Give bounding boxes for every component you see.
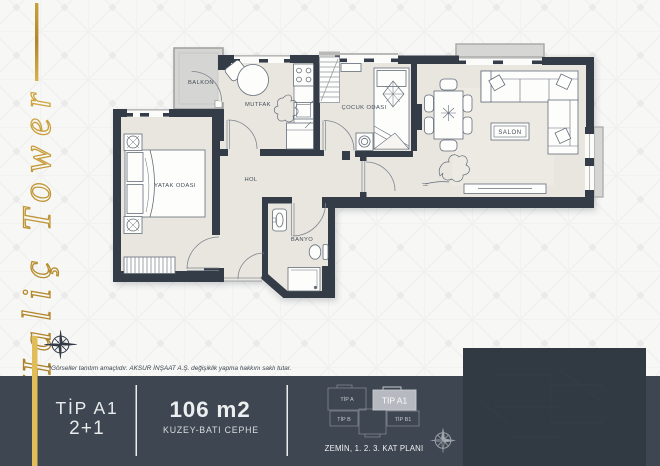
svg-text:TİP B1: TİP B1 — [395, 416, 412, 423]
svg-text:TİP B: TİP B — [337, 416, 351, 423]
svg-text:TİP A1: TİP A1 — [382, 396, 408, 406]
svg-text:106 m2: 106 m2 — [169, 397, 250, 422]
svg-text:BANYO: BANYO — [291, 237, 313, 243]
svg-text:TİP A1: TİP A1 — [55, 398, 118, 418]
svg-text:MUTFAK: MUTFAK — [245, 102, 271, 108]
svg-text:HOL: HOL — [244, 177, 257, 183]
svg-text:KUZEY-BATI CEPHE: KUZEY-BATI CEPHE — [163, 425, 259, 435]
svg-text:BALKON: BALKON — [188, 80, 214, 86]
svg-text:TİP A: TİP A — [340, 396, 354, 403]
svg-text:2+1: 2+1 — [69, 418, 105, 439]
svg-text:ZEMİN, 1. 2. 3. KAT PLANI: ZEMİN, 1. 2. 3. KAT PLANI — [325, 444, 424, 453]
svg-text:SALON: SALON — [498, 130, 521, 136]
svg-text:YATAK ODASI: YATAK ODASI — [154, 183, 196, 189]
svg-text:ÇOCUK ODASI: ÇOCUK ODASI — [342, 105, 387, 111]
svg-text:*Görseller tanıtım amaçlıdır.: *Görseller tanıtım amaçlıdır. AKSUR İNŞA… — [49, 364, 292, 372]
